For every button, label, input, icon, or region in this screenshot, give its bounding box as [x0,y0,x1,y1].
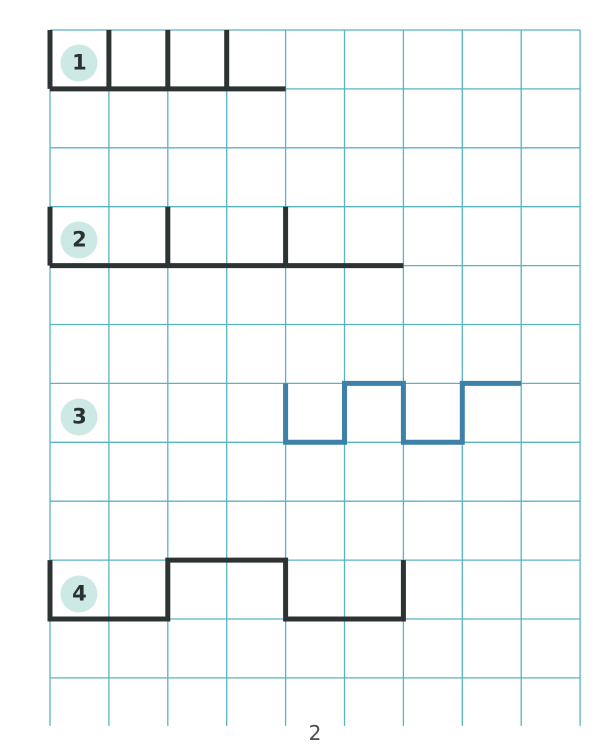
pattern-1-badge: 1 [61,45,98,82]
pattern-3-number: 3 [72,406,87,427]
pattern-1-number: 1 [72,53,87,74]
pattern-4-number: 4 [72,583,87,604]
pattern-grid-canvas [0,0,600,750]
page-number: 2 [309,723,322,743]
pattern-3-badge: 3 [61,398,98,435]
pattern-2-badge: 2 [61,222,98,259]
pattern-4-badge: 4 [61,575,98,612]
worksheet-page: 1 2 3 4 2 [0,0,600,750]
pattern-2-number: 2 [72,230,87,251]
